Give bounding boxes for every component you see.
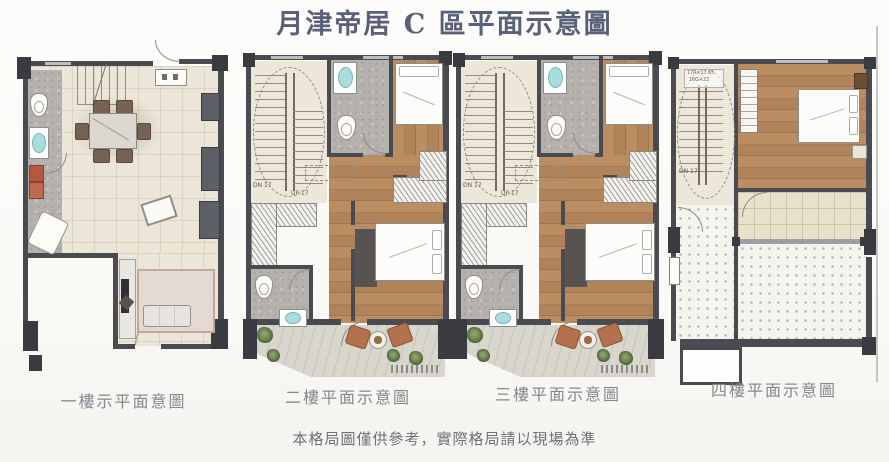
wall-niche <box>669 257 680 285</box>
floor4-label: 四樓平面示意圖 <box>668 381 880 400</box>
dining-chair <box>116 149 133 163</box>
floor2-plan: DN 17 UP 17 <box>243 53 453 383</box>
stairs <box>255 75 285 187</box>
wall <box>23 61 28 323</box>
wall <box>671 59 870 64</box>
bedroom-rug <box>565 229 587 287</box>
column <box>17 57 31 79</box>
terrace-table <box>369 331 387 349</box>
plant-icon <box>477 349 490 362</box>
nightstand <box>852 145 867 159</box>
stair-up-label: UP 17 <box>501 191 519 198</box>
bed <box>585 223 655 281</box>
wall <box>385 153 393 157</box>
dining-chair <box>93 149 110 163</box>
wall <box>113 253 118 349</box>
plant-icon <box>467 327 483 343</box>
floor3-label: 三樓平面示意圖 <box>453 385 663 404</box>
wall <box>327 153 363 157</box>
floor2-label: 二樓平面示意圖 <box>243 388 453 407</box>
bed <box>605 63 653 125</box>
roof-terrace <box>738 244 866 339</box>
dining-chair <box>93 100 110 114</box>
fridge-icon <box>201 93 220 121</box>
wall <box>28 253 118 258</box>
pillow <box>849 117 858 135</box>
window-strip <box>573 56 613 59</box>
floor4-plan: 17R×17.65 16G×23 DN 17 <box>668 57 880 385</box>
roof-room-outline <box>680 347 742 385</box>
sink-icon <box>495 312 511 324</box>
stair-landing-outline <box>305 165 353 181</box>
bed <box>395 63 443 125</box>
column <box>243 53 255 67</box>
stair-stringer <box>698 85 707 185</box>
wall <box>461 265 523 269</box>
stairs <box>465 75 495 187</box>
closet-shelves <box>740 69 758 133</box>
wardrobe <box>419 151 447 181</box>
stair-dimension-label: 17R×17.65 <box>687 71 714 76</box>
plant-icon <box>597 349 610 362</box>
wall <box>599 55 603 157</box>
stair-dimension-label: 16G×23 <box>689 78 709 83</box>
stove-counter <box>199 201 220 239</box>
sink-icon <box>548 67 563 88</box>
pillow <box>609 66 649 77</box>
wall <box>351 201 355 225</box>
window-strip <box>481 56 513 59</box>
stair-up-label: UP 17 <box>291 191 309 198</box>
column <box>668 227 680 253</box>
plant-icon <box>257 327 273 343</box>
plant-icon <box>619 351 633 365</box>
stair-landing-outline <box>515 165 563 181</box>
stair-down-label: DN 17 <box>463 183 482 190</box>
column <box>453 53 465 67</box>
floorplan-sheet: 月津帝居 C 區平面示意圖 <box>0 0 889 462</box>
bed <box>375 223 445 281</box>
entry-door-arc <box>155 40 180 62</box>
dining-table <box>89 113 137 149</box>
bedroom-rug <box>355 229 377 287</box>
cabinet <box>29 182 44 199</box>
column <box>438 319 454 359</box>
window-strip <box>45 62 71 65</box>
pillow <box>432 254 442 274</box>
floor3-plan: DN 17 UP 17 <box>453 53 663 383</box>
pillow <box>432 230 442 250</box>
wall <box>595 153 603 157</box>
wall <box>456 55 461 323</box>
doormat <box>391 365 439 373</box>
column <box>243 319 257 359</box>
window-strip <box>271 56 303 59</box>
closet <box>251 203 277 269</box>
wall <box>680 339 870 347</box>
dining-chair <box>116 100 133 114</box>
closet <box>461 203 487 269</box>
column <box>23 321 38 351</box>
sill-cap <box>732 237 740 246</box>
floor1-plan <box>15 57 232 378</box>
bed-crease <box>613 92 645 106</box>
sink-icon <box>285 312 301 324</box>
pillow <box>642 254 652 274</box>
sheet-title: 月津帝居 C 區平面示意圖 <box>0 7 889 42</box>
pillow <box>642 230 652 250</box>
appliance-glyph <box>162 74 167 80</box>
bed-crease <box>599 243 637 258</box>
doormat <box>601 365 649 373</box>
plant-icon <box>387 349 400 362</box>
floor1-label: 一樓示平面意圖 <box>15 392 232 411</box>
cabinet <box>29 165 44 182</box>
column <box>668 57 679 69</box>
wall <box>251 265 313 269</box>
window-strip <box>776 60 828 63</box>
bed <box>798 89 860 143</box>
plant-icon <box>267 349 280 362</box>
stair-down-label: DN 17 <box>253 183 272 190</box>
column <box>29 355 42 371</box>
wall <box>113 344 135 349</box>
stair-down-label: DN 17 <box>679 169 698 176</box>
wall <box>734 192 738 340</box>
terrace-sill <box>738 239 866 244</box>
dining-chair <box>137 123 151 140</box>
column <box>212 55 228 71</box>
wall <box>537 55 541 157</box>
paper-fold-line <box>876 26 878 382</box>
wall <box>738 188 866 192</box>
column <box>453 319 467 359</box>
column <box>648 319 664 359</box>
sink-icon <box>32 133 46 153</box>
wardrobe <box>629 151 657 181</box>
dining-chair <box>75 123 89 140</box>
pillow <box>399 66 439 77</box>
plant-icon <box>409 351 423 365</box>
wall <box>537 153 573 157</box>
bed-crease <box>403 92 435 106</box>
nightstand <box>854 73 868 89</box>
wall <box>327 55 331 157</box>
wall <box>246 55 251 323</box>
window-strip <box>363 56 403 59</box>
pillow <box>849 95 858 113</box>
disclaimer-text: 本格局圖僅供參考，實際格局請以現場為準 <box>0 430 889 450</box>
wall <box>389 55 393 157</box>
wall <box>561 201 565 225</box>
appliance-glyph <box>173 74 178 80</box>
appliance-box <box>155 69 187 86</box>
bed-crease <box>389 243 427 258</box>
terrace-table <box>579 331 597 349</box>
wall <box>671 59 676 229</box>
wall <box>866 257 872 341</box>
sink-icon <box>338 67 353 88</box>
kitchen-counter <box>201 147 220 191</box>
sofa <box>143 305 191 327</box>
bed-crease <box>810 108 845 120</box>
